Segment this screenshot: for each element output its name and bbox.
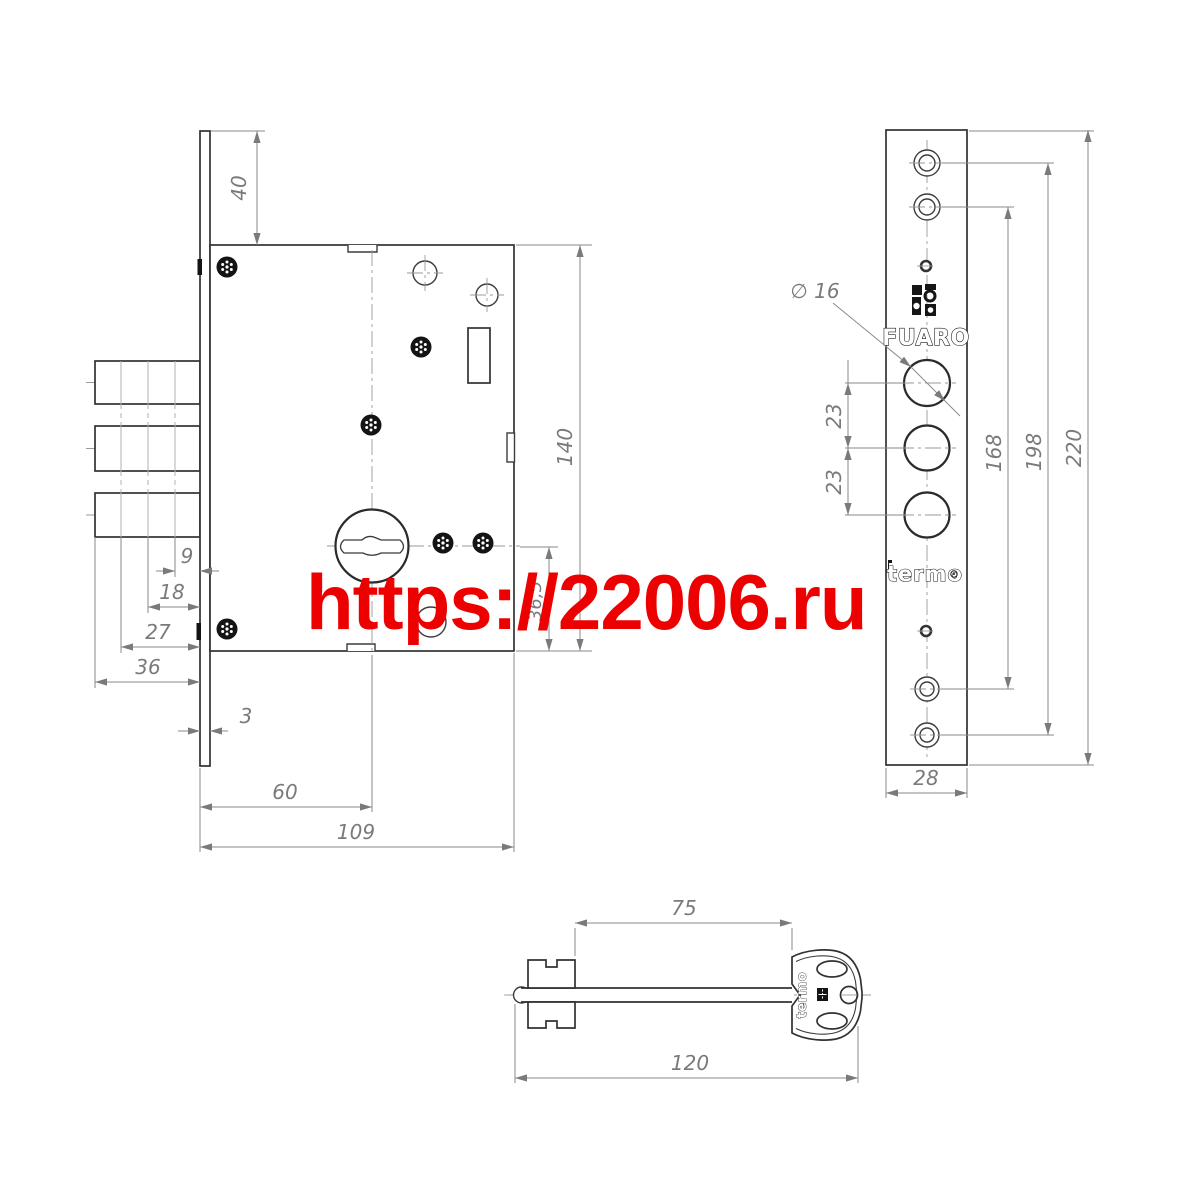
dim-hole-diameter: ∅ 16 <box>790 279 839 303</box>
key-termo-label: termo <box>795 972 810 1018</box>
screw-icon <box>217 257 238 278</box>
dim-body-height: 140 <box>553 428 577 466</box>
key-head: termo <box>792 950 862 1040</box>
lock-technical-drawing: 40 140 36,5 9 18 27 <box>0 0 1200 1200</box>
dim-pitch-upper: 23 <box>822 403 846 428</box>
watermark: https://22006.ru <box>306 558 867 646</box>
dim-span-outer: 198 <box>1022 433 1046 471</box>
faceplate-cylinder-holes <box>898 360 956 538</box>
dim-span-inner: 168 <box>982 434 1006 472</box>
deadbolts <box>86 361 200 537</box>
dim-backset: 60 <box>272 780 297 804</box>
dim-plate-thickness: 3 <box>240 704 253 728</box>
key-shank <box>521 989 791 1001</box>
dim-step2: 18 <box>159 580 184 604</box>
dim-step1: 9 <box>181 544 194 568</box>
key-bit-upper <box>528 960 575 988</box>
screw-icon <box>433 533 454 554</box>
dim-body-depth: 109 <box>337 820 375 844</box>
fuaro-logo: FUARO <box>882 326 969 351</box>
dim-key-shaft: 75 <box>671 896 696 920</box>
dim-key-total: 120 <box>671 1051 709 1075</box>
dim-pitch-lower: 23 <box>822 469 846 494</box>
key-view: termo 75 120 <box>504 896 872 1083</box>
screw-icon <box>473 533 494 554</box>
side-latch-notch <box>507 433 515 462</box>
dim-bolt-depth: 36 <box>135 655 160 679</box>
dim-plate-width: 28 <box>913 766 938 790</box>
dim-step3: 27 <box>145 620 171 644</box>
screw-icon <box>361 415 382 436</box>
faceplate-side <box>200 131 210 766</box>
svg-text:termo: termo <box>887 562 963 586</box>
dim-plate-height: 220 <box>1062 429 1086 467</box>
faceplate-view: FUARO termo <box>790 130 1094 798</box>
faceplate-mark-top <box>198 259 203 275</box>
dim-offset-top: 40 <box>227 175 251 200</box>
screw-icon <box>411 337 432 358</box>
termo-logo: termo <box>887 560 963 586</box>
screw-icon <box>217 619 238 640</box>
top-notch <box>348 245 377 252</box>
faceplate-mark-bottom <box>197 623 202 640</box>
key-bit-lower <box>528 1002 575 1028</box>
main-view: 40 140 36,5 9 18 27 <box>86 131 592 852</box>
